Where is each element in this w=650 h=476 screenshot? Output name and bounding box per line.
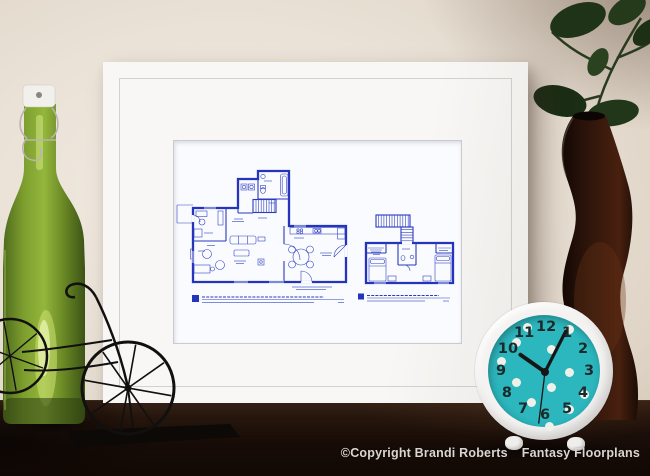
product-photo-scene: 121234567891011 ©Copyright Brandi Robert… [0, 0, 650, 476]
clock-hands [475, 302, 615, 454]
copyright-text: ©Copyright Brandi Roberts [341, 446, 508, 460]
brand-text: Fantasy Floorplans [522, 446, 640, 460]
bike-frame [22, 284, 133, 428]
bicycle-figurine [0, 260, 260, 476]
second-floor-plan [366, 215, 453, 284]
title-block-second-floor [358, 294, 450, 302]
small-wheel [0, 319, 47, 393]
leaves [530, 0, 650, 129]
clock-center-cap [541, 368, 549, 376]
copyright-watermark: ©Copyright Brandi RobertsFantasy Floorpl… [341, 446, 640, 460]
table-clock: 121234567891011 [475, 302, 615, 454]
